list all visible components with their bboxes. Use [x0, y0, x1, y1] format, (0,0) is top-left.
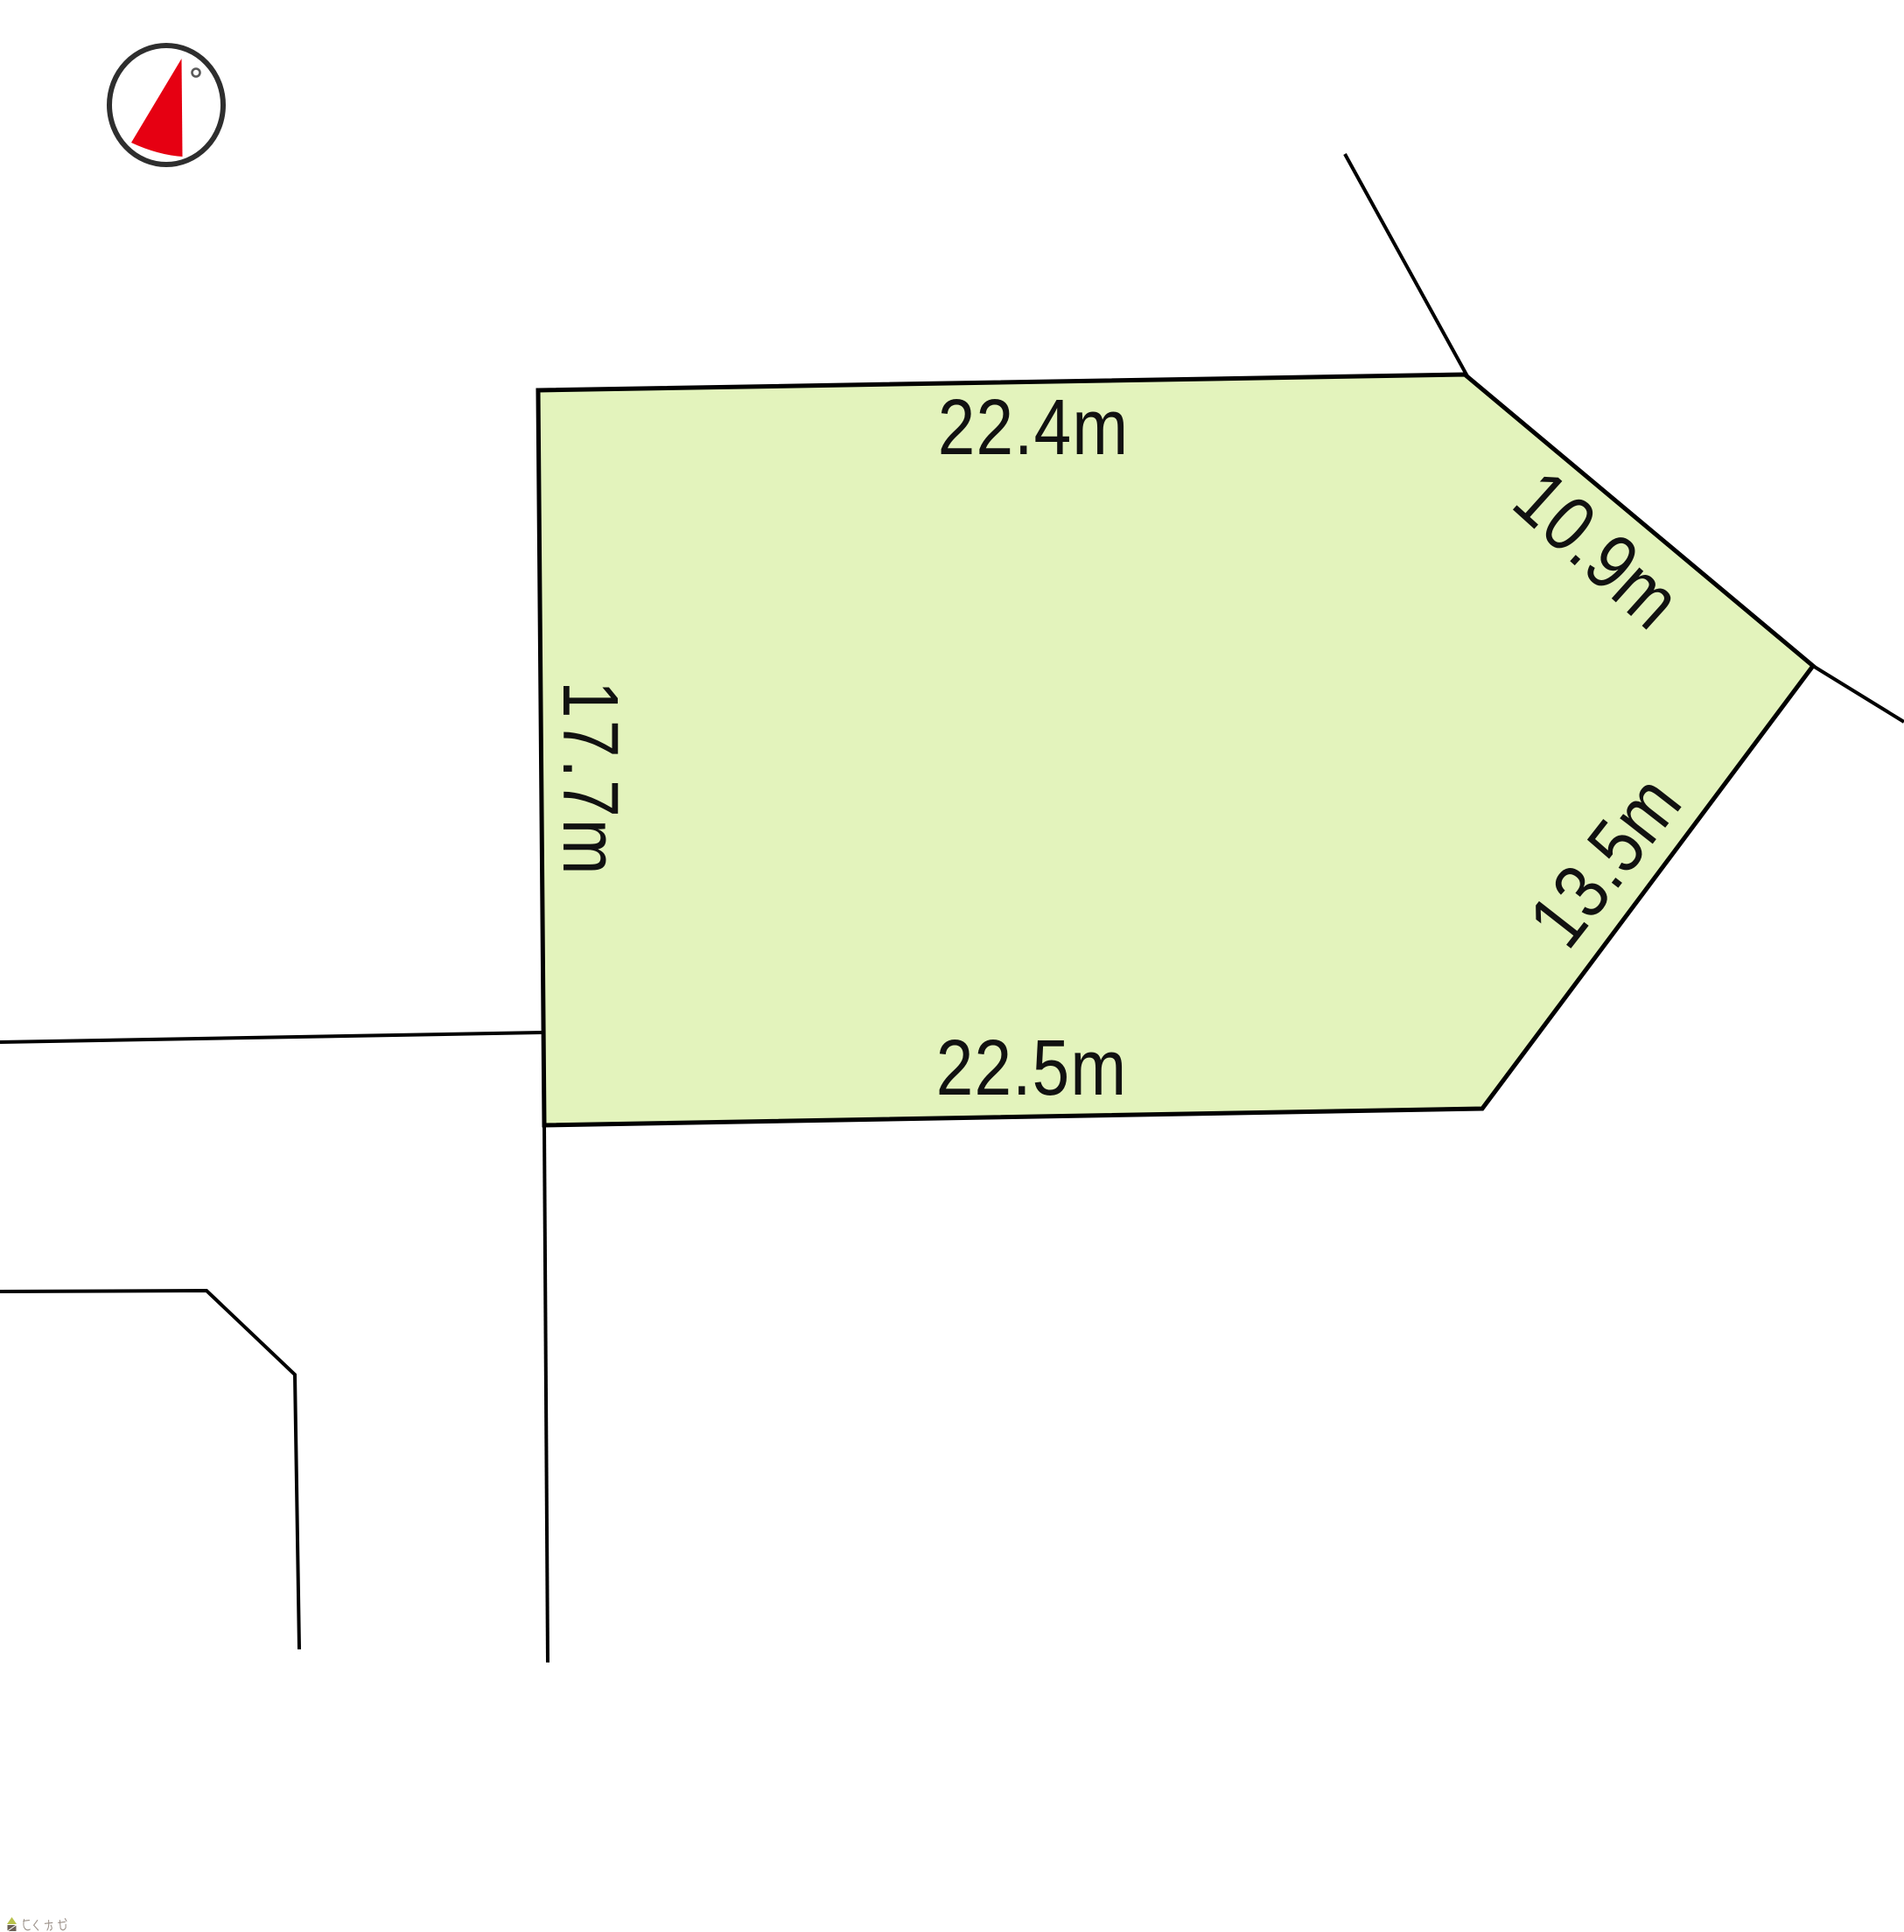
svg-text:22.5m: 22.5m — [936, 1023, 1128, 1111]
svg-text:17.7m: 17.7m — [547, 681, 635, 877]
svg-text:22.4m: 22.4m — [938, 382, 1130, 471]
